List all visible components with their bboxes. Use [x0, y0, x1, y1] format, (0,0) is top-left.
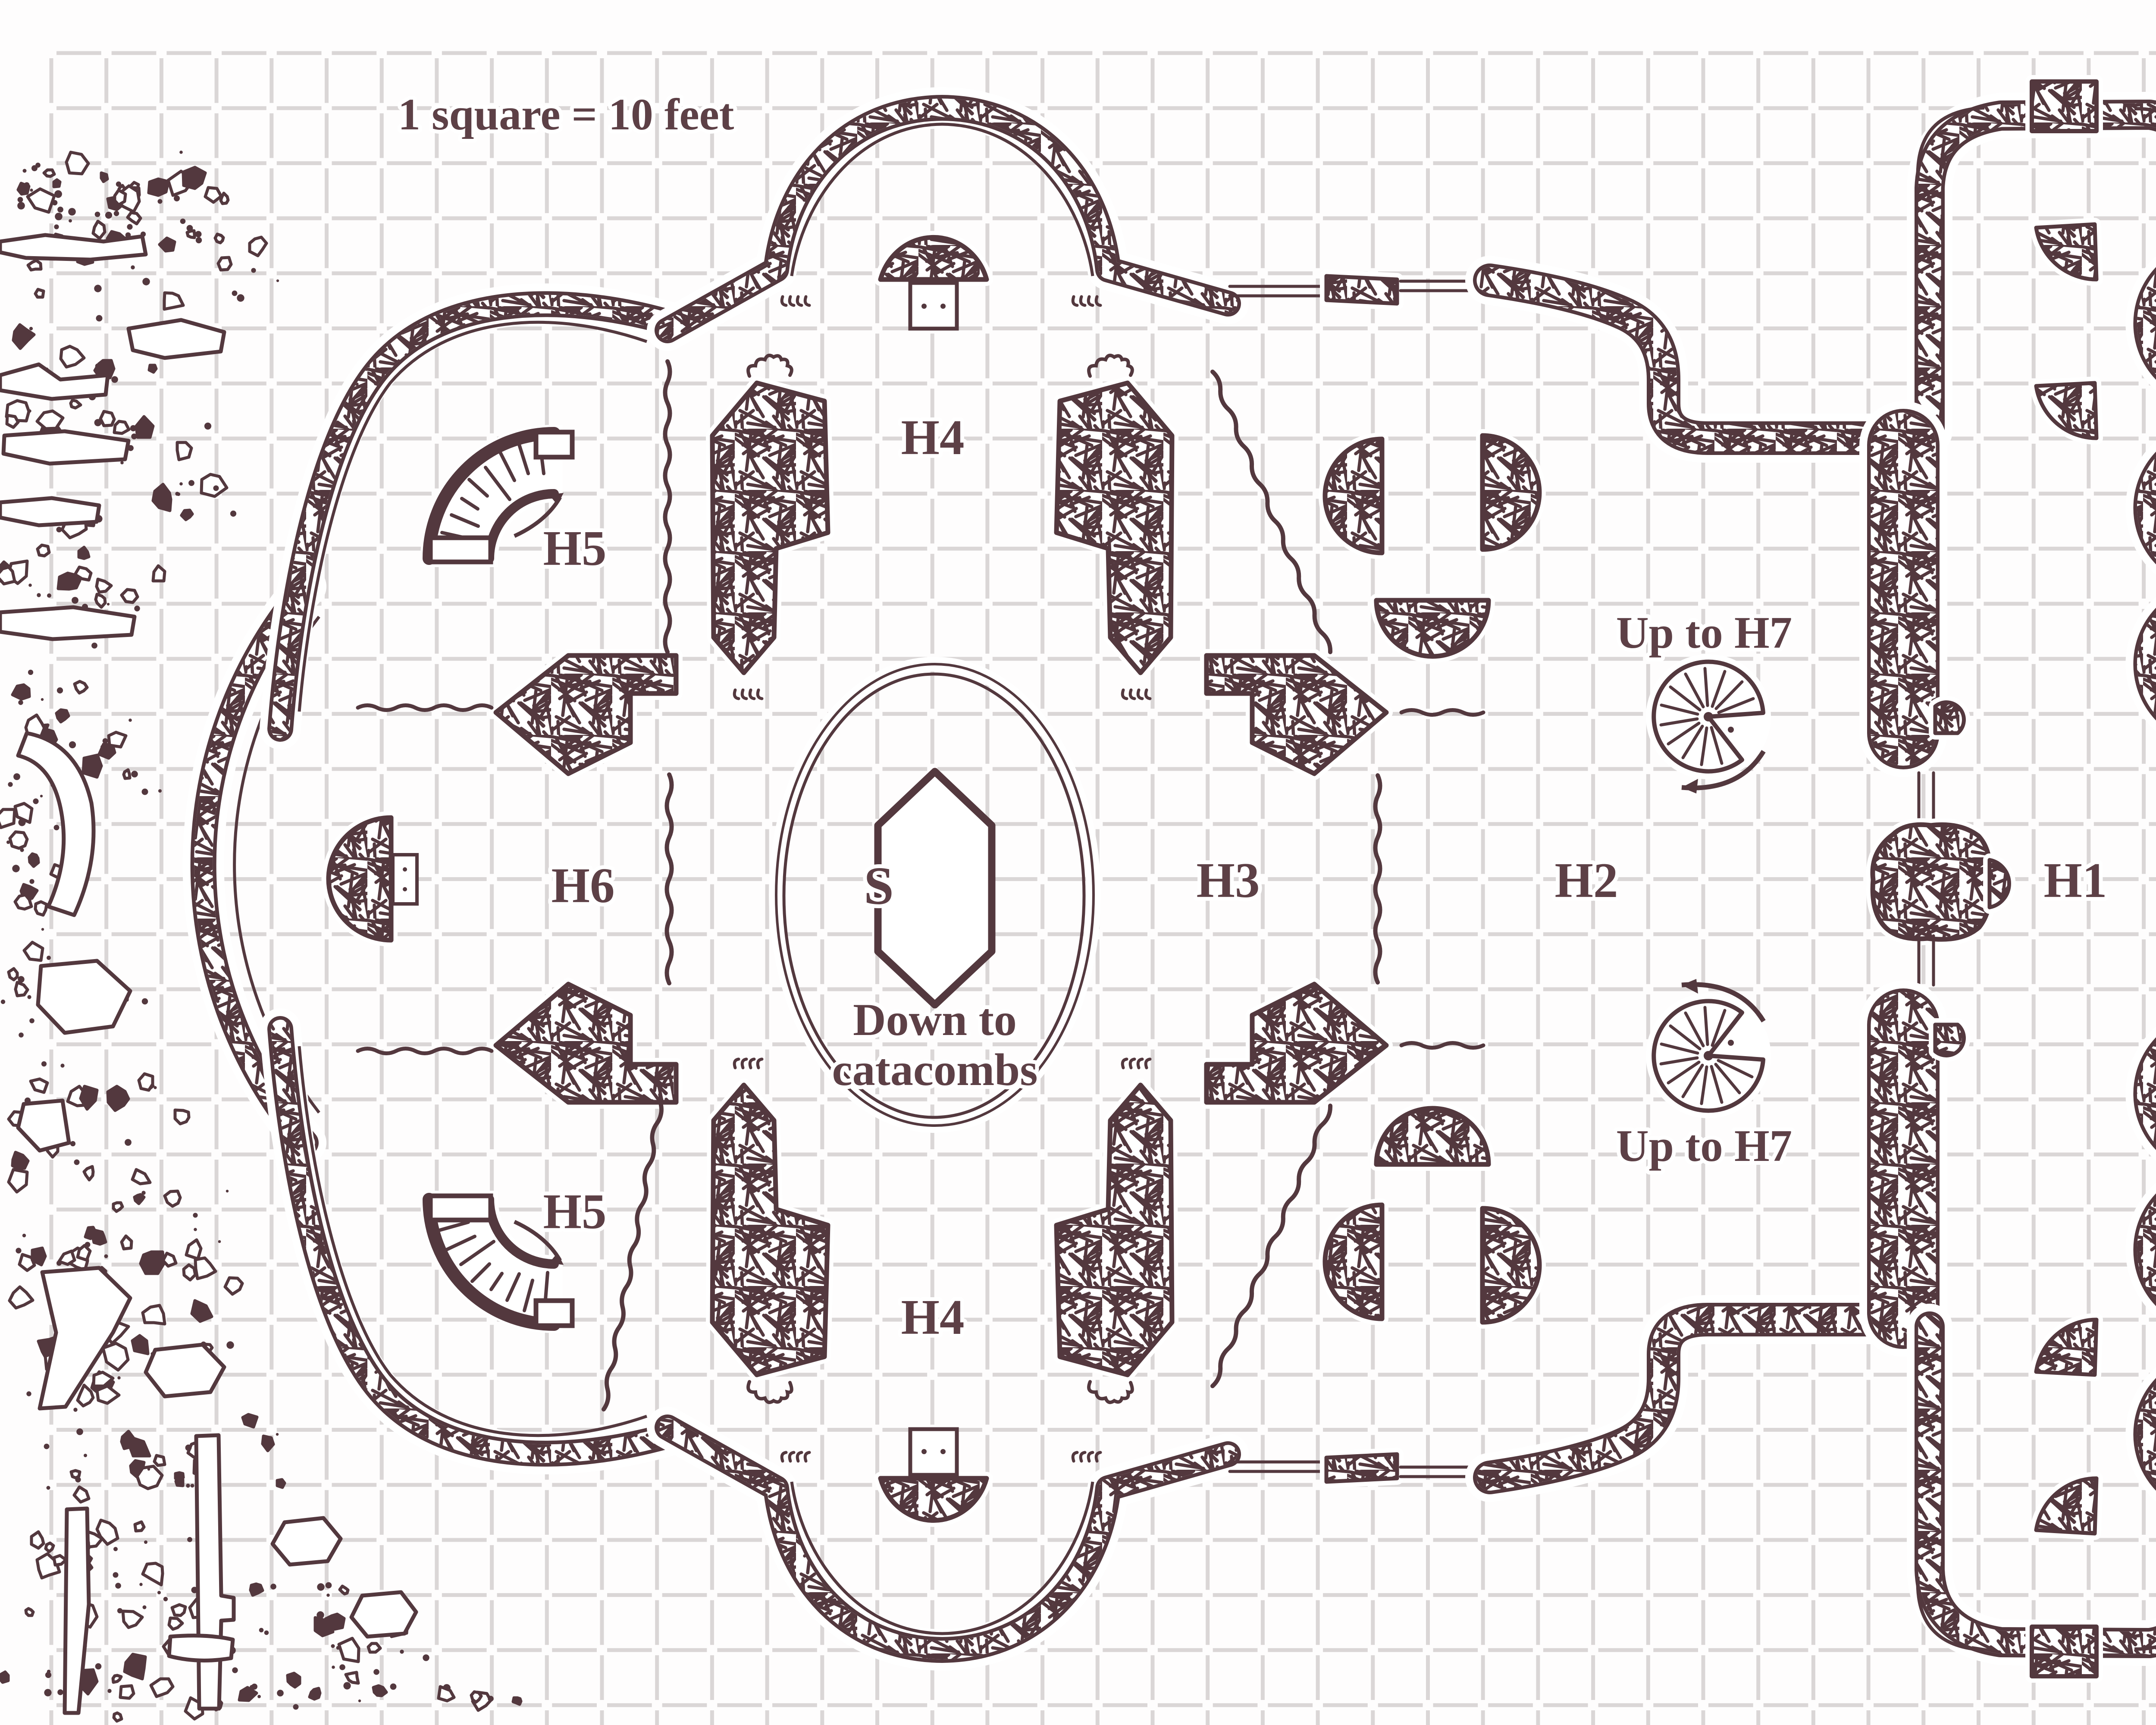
svg-text:H1: H1: [2044, 853, 2107, 908]
svg-text:H2: H2: [1555, 853, 1618, 908]
svg-text:H5: H5: [543, 521, 607, 576]
svg-text:Up to H7: Up to H7: [1616, 607, 1792, 658]
svg-text:1 square = 10 feet: 1 square = 10 feet: [398, 90, 734, 139]
svg-text:catacombs: catacombs: [832, 1044, 1038, 1095]
svg-text:S: S: [864, 856, 894, 916]
svg-text:H4: H4: [901, 410, 965, 465]
svg-text:H6: H6: [552, 858, 615, 913]
svg-text:H5: H5: [543, 1184, 607, 1239]
svg-text:Down to: Down to: [853, 994, 1017, 1045]
svg-text:Up to H7: Up to H7: [1616, 1120, 1792, 1171]
svg-text:H3: H3: [1197, 853, 1260, 908]
svg-text:H4: H4: [901, 1290, 965, 1345]
